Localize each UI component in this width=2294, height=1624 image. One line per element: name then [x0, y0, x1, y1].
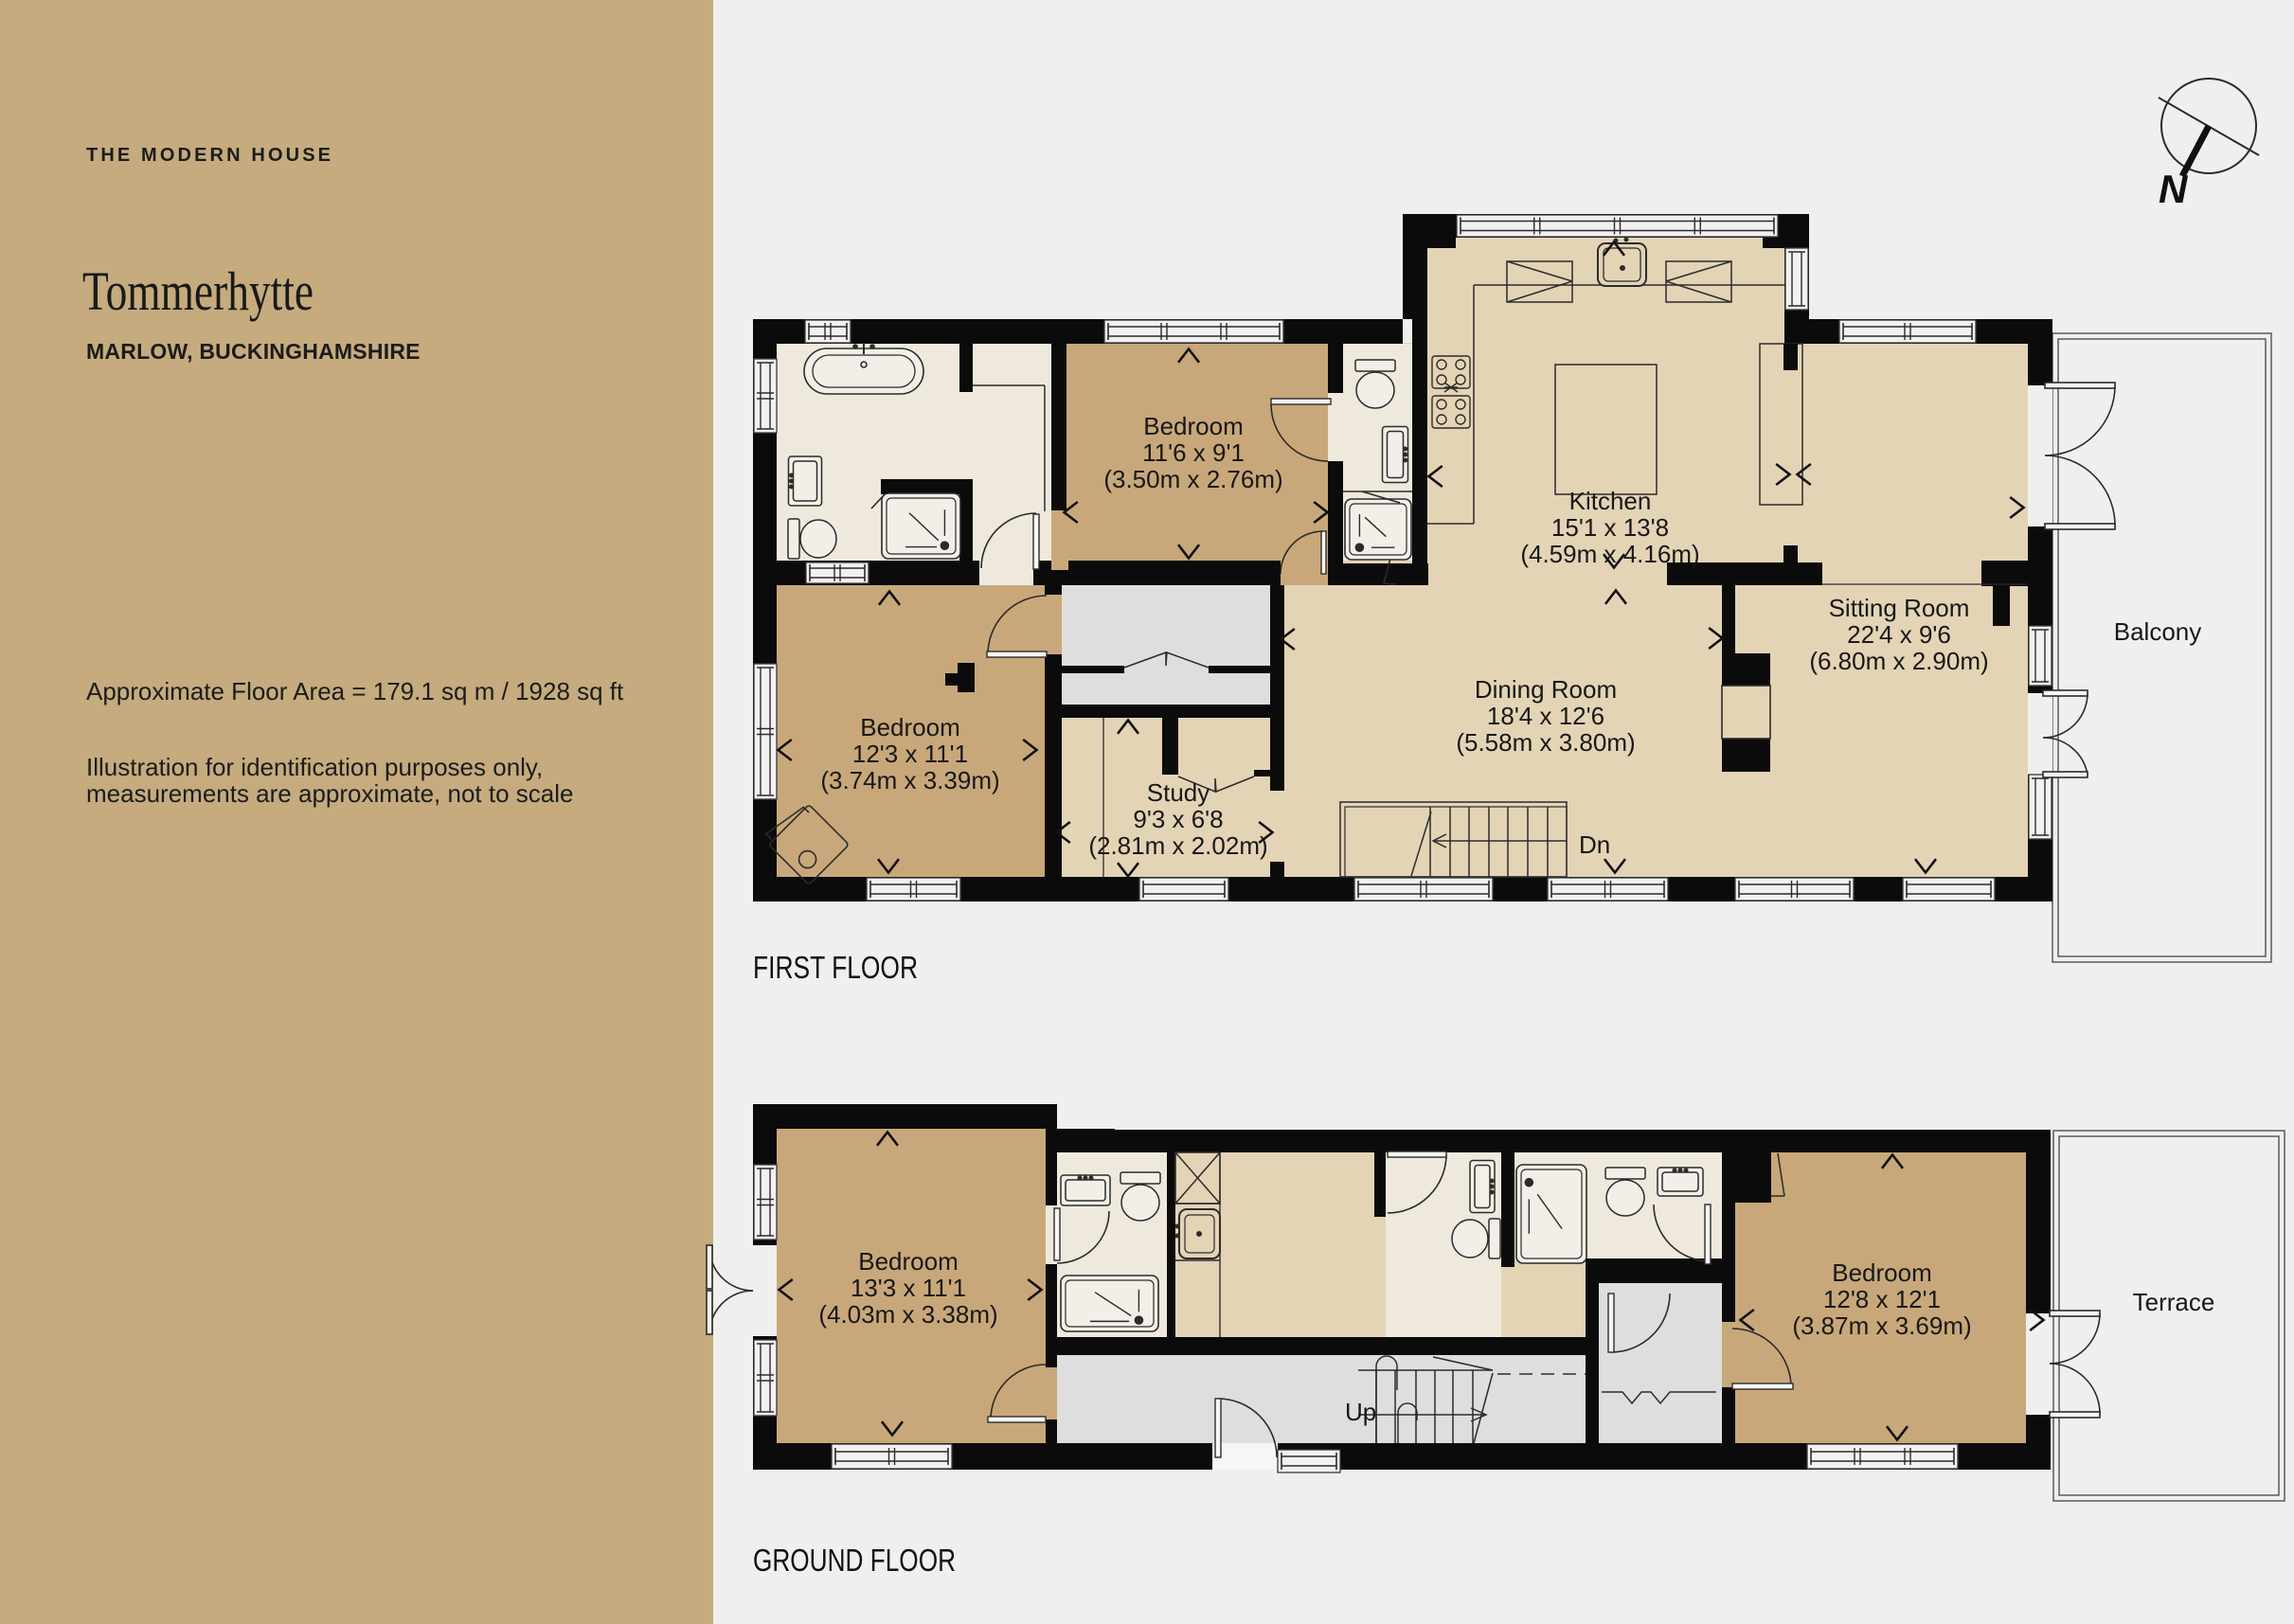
- svg-text:12'8 x 12'1: 12'8 x 12'1: [1823, 1285, 1941, 1313]
- svg-text:11'6 x 9'1: 11'6 x 9'1: [1142, 438, 1245, 467]
- svg-text:22'4 x 9'6: 22'4 x 9'6: [1847, 620, 1951, 649]
- svg-text:MARLOW, BUCKINGHAMSHIRE: MARLOW, BUCKINGHAMSHIRE: [86, 339, 421, 364]
- svg-text:FIRST FLOOR: FIRST FLOOR: [753, 950, 918, 985]
- svg-text:Bedroom: Bedroom: [1832, 1258, 1932, 1287]
- svg-text:(3.74m x 3.39m): (3.74m x 3.39m): [820, 766, 999, 794]
- svg-text:Up: Up: [1345, 1398, 1376, 1426]
- svg-text:Dining Room: Dining Room: [1475, 675, 1617, 704]
- svg-text:15'1 x 13'8: 15'1 x 13'8: [1551, 513, 1669, 542]
- svg-text:18'4 x 12'6: 18'4 x 12'6: [1487, 702, 1604, 730]
- svg-text:THE MODERN HOUSE: THE MODERN HOUSE: [86, 145, 334, 166]
- svg-text:(5.58m x 3.80m): (5.58m x 3.80m): [1456, 728, 1635, 757]
- svg-text:Bedroom: Bedroom: [860, 713, 960, 741]
- svg-text:9'3 x 6'8: 9'3 x 6'8: [1133, 805, 1223, 833]
- svg-text:Terrace: Terrace: [2133, 1288, 2215, 1316]
- svg-text:Kitchen: Kitchen: [1569, 487, 1652, 515]
- svg-text:(6.80m x 2.90m): (6.80m x 2.90m): [1809, 647, 1988, 675]
- svg-text:GROUND FLOOR: GROUND FLOOR: [753, 1543, 956, 1578]
- svg-text:(2.81m x 2.02m): (2.81m x 2.02m): [1088, 831, 1267, 860]
- svg-text:Sitting Room: Sitting Room: [1829, 594, 1970, 622]
- svg-text:measurements are approximate,: measurements are approximate, not to sca…: [86, 779, 573, 808]
- svg-text:(3.87m x 3.69m): (3.87m x 3.69m): [1792, 1312, 1971, 1340]
- svg-text:13'3 x 11'1: 13'3 x 11'1: [851, 1274, 966, 1302]
- svg-text:N: N: [2159, 167, 2189, 211]
- svg-text:Balcony: Balcony: [2114, 617, 2202, 646]
- svg-text:Study: Study: [1147, 778, 1210, 807]
- svg-text:Bedroom: Bedroom: [858, 1247, 959, 1276]
- svg-text:Dn: Dn: [1579, 830, 1610, 859]
- svg-text:Illustration for identificatio: Illustration for identification purposes…: [86, 753, 543, 781]
- svg-text:Bedroom: Bedroom: [1143, 412, 1244, 440]
- svg-text:Tommerhytte: Tommerhytte: [82, 260, 314, 322]
- svg-text:(4.03m x 3.38m): (4.03m x 3.38m): [818, 1300, 997, 1329]
- svg-text:(3.50m x 2.76m): (3.50m x 2.76m): [1103, 465, 1282, 493]
- svg-text:12'3 x 11'1: 12'3 x 11'1: [852, 740, 968, 768]
- svg-text:Approximate Floor Area = 179.1: Approximate Floor Area = 179.1 sq m / 19…: [86, 677, 624, 705]
